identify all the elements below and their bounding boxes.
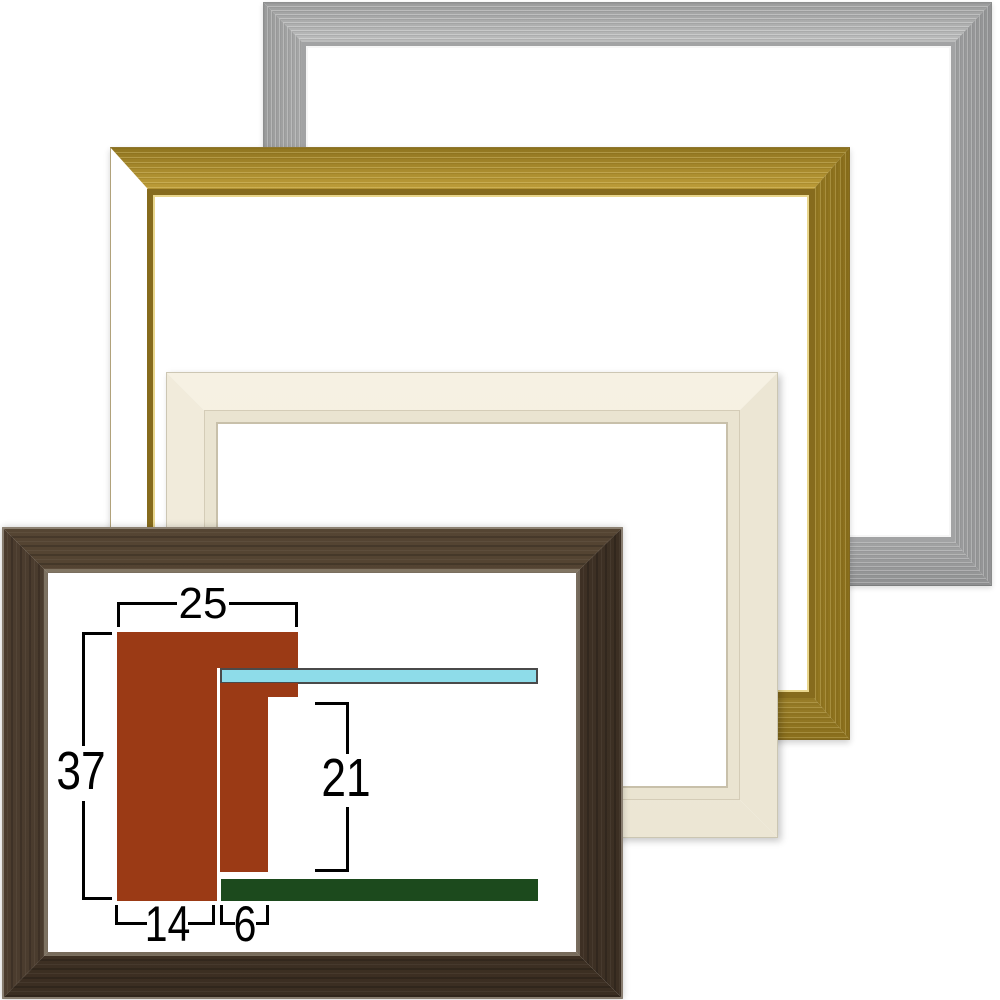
- moulding-cross-section-diagram: 25 37 21 14 6: [0, 0, 1000, 1000]
- dim-21-line-upper: [346, 702, 349, 754]
- moulding-profile-inner: [220, 683, 298, 872]
- frame-product-photo: 25 37 21 14 6: [0, 0, 1000, 1000]
- dim-25-line-left: [117, 602, 177, 605]
- dim-21-line-lower: [346, 807, 349, 872]
- dim-label-overall-height: 37: [56, 744, 107, 798]
- dim-25-tick-right: [295, 602, 298, 627]
- dim-37-line-lower: [82, 801, 85, 900]
- dim-label-face-width: 14: [144, 899, 191, 949]
- dim-37-tick-top: [82, 632, 112, 635]
- dim-14-line-left: [115, 922, 147, 925]
- dim-label-lip-width: 6: [222, 899, 268, 949]
- dim-37-tick-bottom: [82, 897, 112, 900]
- glass-bar: [220, 668, 538, 684]
- dim-21-tick-bottom: [315, 869, 349, 872]
- dim-37-line-upper: [82, 632, 85, 746]
- backboard-bar: [221, 879, 538, 901]
- dim-25-line-right: [229, 602, 298, 605]
- dim-14-line-right: [188, 922, 215, 925]
- dim-label-overall-width: 25: [177, 582, 229, 626]
- dim-25-tick-left: [117, 602, 120, 627]
- dim-label-inner-height: 21: [321, 751, 372, 805]
- dim-21-tick-top: [315, 702, 349, 705]
